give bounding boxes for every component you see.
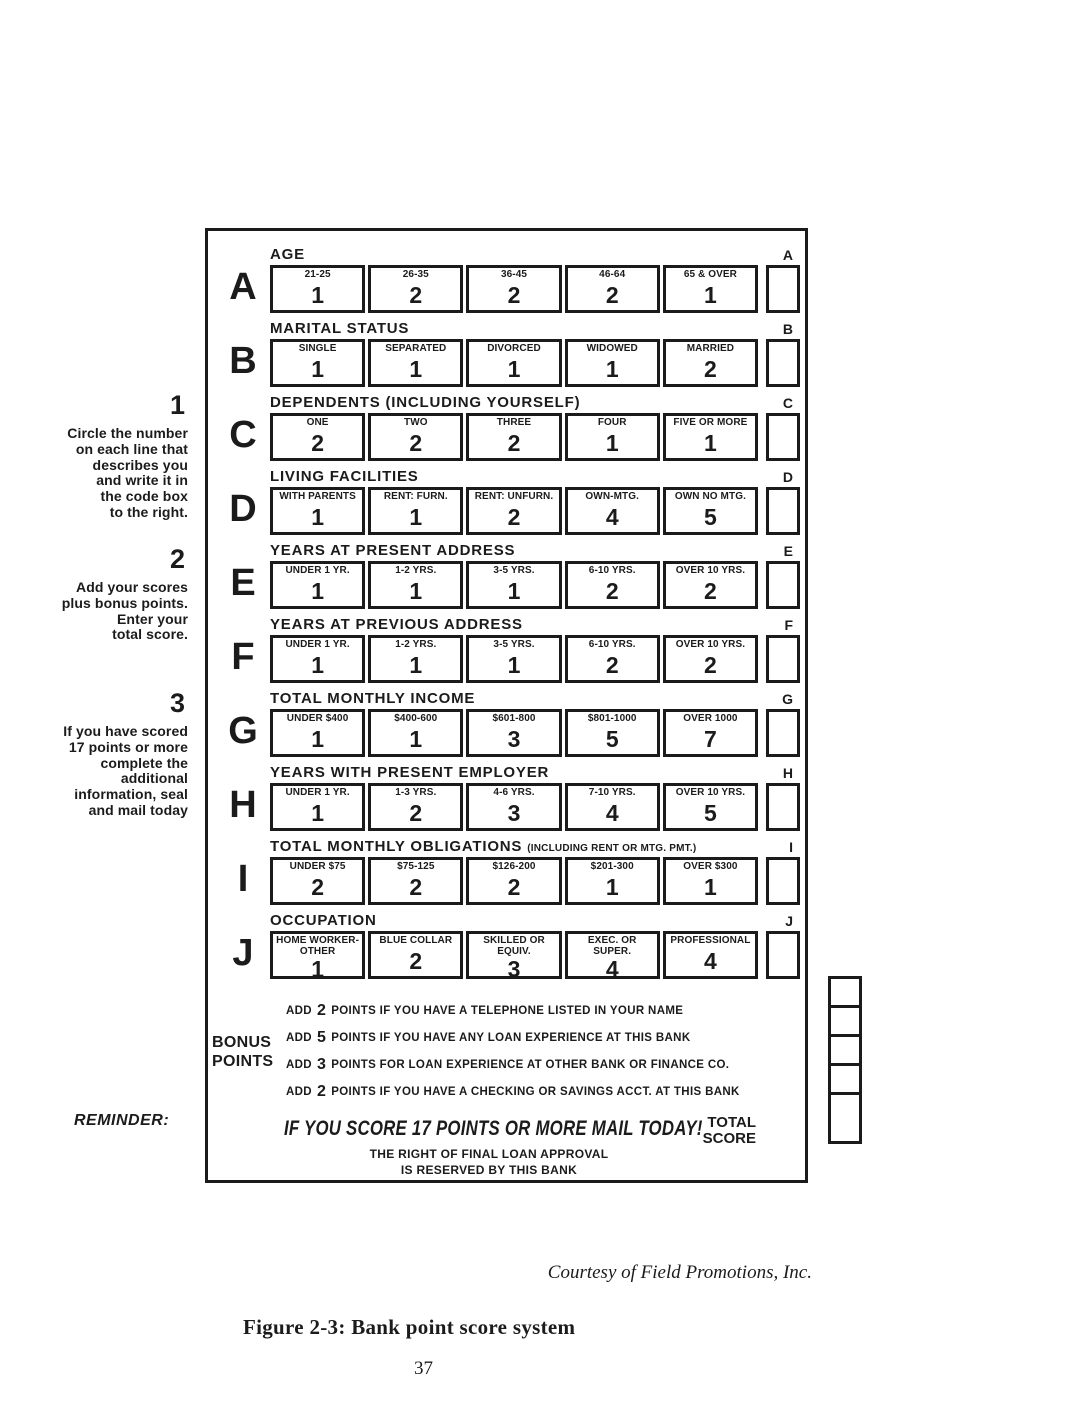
bonus-box	[831, 979, 859, 1008]
courtesy-credit: Courtesy of Field Promotions, Inc.	[548, 1262, 812, 1284]
option-cell: $201-3001	[565, 857, 660, 905]
section-title: AGE	[270, 246, 305, 263]
code-entry-box	[766, 265, 800, 313]
row-letter: J	[220, 928, 266, 978]
section-title: TOTAL MONTHLY OBLIGATIONS	[270, 838, 522, 855]
code-entry-box	[766, 857, 800, 905]
total-score-box	[831, 1095, 859, 1141]
step-number: 2	[56, 546, 188, 573]
option-cell: 65 & OVER1	[663, 265, 758, 313]
score-section-living-facilities: D LIVING FACILITIES D WITH PARENTS1 RENT…	[208, 467, 805, 541]
option-cell: WITH PARENTS1	[270, 487, 365, 535]
bonus-box	[831, 1008, 859, 1037]
option-cell: OWN-MTG.4	[565, 487, 660, 535]
reminder-section: IF YOU SCORE 17 POINTS OR MORE MAIL TODA…	[208, 1109, 805, 1179]
instruction-step-3: 3 If you have scored 17 points or more c…	[56, 690, 188, 819]
option-cell: SKILLED OR EQUIV.3	[466, 931, 561, 979]
scanned-book-page: 1 Circle the number on each line that de…	[0, 0, 1088, 1406]
page-number: 37	[414, 1358, 433, 1380]
option-cell: 46-642	[565, 265, 660, 313]
option-cell: WIDOWED1	[565, 339, 660, 387]
option-cell: UNDER 1 YR.1	[270, 783, 365, 831]
row-letter: A	[220, 262, 266, 312]
option-cell: OVER 10 YRS.2	[663, 635, 758, 683]
option-cell: UNDER 1 YR.1	[270, 561, 365, 609]
code-letter: A	[783, 247, 793, 263]
code-entry-box	[766, 783, 800, 831]
section-title: LIVING FACILITIES	[270, 468, 419, 485]
step-number: 1	[56, 392, 188, 419]
row-letter: D	[220, 484, 266, 534]
row-letter: G	[220, 706, 266, 756]
total-score-label: TOTAL SCORE	[694, 1115, 756, 1147]
code-letter: F	[784, 617, 793, 633]
code-letter: H	[783, 765, 793, 781]
code-entry-box	[766, 487, 800, 535]
row-letter: H	[220, 780, 266, 830]
option-cell: $126-2002	[466, 857, 561, 905]
score-section-years-previous-address: F YEARS AT PREVIOUS ADDRESS F UNDER 1 YR…	[208, 615, 805, 689]
option-cell: 7-10 YRS.4	[565, 783, 660, 831]
option-cell: DIVORCED1	[466, 339, 561, 387]
option-cell: OVER 10007	[663, 709, 758, 757]
option-cell: MARRIED2	[663, 339, 758, 387]
option-cell: FOUR1	[565, 413, 660, 461]
score-section-occupation: J OCCUPATION J HOME WORKER- OTHER1 BLUE …	[208, 911, 805, 985]
bonus-rule: ADD 2 POINTS IF YOU HAVE A CHECKING OR S…	[286, 1078, 740, 1105]
code-entry-box	[766, 709, 800, 757]
section-title: YEARS WITH PRESENT EMPLOYER	[270, 764, 549, 781]
instruction-step-2: 2 Add your scores plus bonus points. Ent…	[56, 546, 188, 643]
option-cell: 36-452	[466, 265, 561, 313]
option-cell: 26-352	[368, 265, 463, 313]
score-section-dependents: C DEPENDENTS (INCLUDING YOURSELF) C ONE2…	[208, 393, 805, 467]
row-letter: F	[220, 632, 266, 682]
score-section-years-present-address: E YEARS AT PRESENT ADDRESS E UNDER 1 YR.…	[208, 541, 805, 615]
option-cell: 3-5 YRS.1	[466, 561, 561, 609]
code-entry-box	[766, 339, 800, 387]
reminder-label: REMINDER:	[74, 1112, 169, 1130]
option-cell: $75-1252	[368, 857, 463, 905]
figure-caption: Figure 2-3: Bank point score system	[243, 1315, 575, 1340]
option-cell: UNDER $752	[270, 857, 365, 905]
section-title: DEPENDENTS (INCLUDING YOURSELF)	[270, 394, 580, 411]
section-title: YEARS AT PRESENT ADDRESS	[270, 542, 515, 559]
code-letter: C	[783, 395, 793, 411]
option-cell: TWO2	[368, 413, 463, 461]
score-section-monthly-income: G TOTAL MONTHLY INCOME G UNDER $4001 $40…	[208, 689, 805, 763]
option-cell: RENT: FURN.1	[368, 487, 463, 535]
option-cell: 1-2 YRS.1	[368, 635, 463, 683]
option-cell: UNDER 1 YR.1	[270, 635, 365, 683]
code-letter: D	[783, 469, 793, 485]
approval-fine-print: THE RIGHT OF FINAL LOAN APPROVAL IS RESE…	[284, 1147, 694, 1178]
option-cell: OVER 10 YRS.5	[663, 783, 758, 831]
instruction-step-1: 1 Circle the number on each line that de…	[56, 392, 188, 521]
bonus-points-section: BONUS POINTS ADD 2 POINTS IF YOU HAVE A …	[208, 985, 805, 1109]
option-cell: OVER 10 YRS.2	[663, 561, 758, 609]
option-cell: $400-6001	[368, 709, 463, 757]
bonus-box	[831, 1037, 859, 1066]
option-cell: PROFESSIONAL4	[663, 931, 758, 979]
option-cell: $601-8003	[466, 709, 561, 757]
code-entry-box	[766, 413, 800, 461]
score-section-marital-status: B MARITAL STATUS B SINGLE1 SEPARATED1 DI…	[208, 319, 805, 393]
section-title: OCCUPATION	[270, 912, 377, 929]
row-letter: E	[220, 558, 266, 608]
step-text: If you have scored 17 points or more com…	[56, 724, 188, 819]
code-letter: E	[784, 543, 793, 559]
bonus-rule: ADD 2 POINTS IF YOU HAVE A TELEPHONE LIS…	[286, 997, 740, 1024]
section-title: YEARS AT PREVIOUS ADDRESS	[270, 616, 523, 633]
option-cell: 1-3 YRS.2	[368, 783, 463, 831]
option-cell: 3-5 YRS.1	[466, 635, 561, 683]
option-cell: SINGLE1	[270, 339, 365, 387]
bonus-box	[831, 1066, 859, 1095]
option-cell: $801-10005	[565, 709, 660, 757]
row-letter: B	[220, 336, 266, 386]
bank-point-score-form: A AGE A 21-251 26-352 36-452 46-642 65 &…	[205, 228, 808, 1183]
option-cell: 1-2 YRS.1	[368, 561, 463, 609]
step-text: Add your scores plus bonus points. Enter…	[56, 580, 188, 643]
option-cell: 6-10 YRS.2	[565, 635, 660, 683]
option-cell: ONE2	[270, 413, 365, 461]
section-title: MARITAL STATUS	[270, 320, 409, 337]
row-letter: I	[220, 854, 266, 904]
step-number: 3	[56, 690, 188, 717]
section-note: (INCLUDING RENT OR MTG. PMT.)	[527, 843, 696, 854]
code-entry-box	[766, 635, 800, 683]
code-entry-box	[766, 561, 800, 609]
score-section-monthly-obligations: I TOTAL MONTHLY OBLIGATIONS (INCLUDING R…	[208, 837, 805, 911]
row-letter: C	[220, 410, 266, 460]
option-cell: UNDER $4001	[270, 709, 365, 757]
score-section-years-with-employer: H YEARS WITH PRESENT EMPLOYER H UNDER 1 …	[208, 763, 805, 837]
option-cell: SEPARATED1	[368, 339, 463, 387]
code-letter: B	[783, 321, 793, 337]
option-cell: 4-6 YRS.3	[466, 783, 561, 831]
code-letter: J	[785, 913, 793, 929]
code-letter: G	[782, 691, 793, 707]
bonus-rule: ADD 3 POINTS FOR LOAN EXPERIENCE AT OTHE…	[286, 1051, 740, 1078]
option-cell: RENT: UNFURN.2	[466, 487, 561, 535]
option-cell: FIVE OR MORE1	[663, 413, 758, 461]
score-section-age: A AGE A 21-251 26-352 36-452 46-642 65 &…	[208, 245, 805, 319]
bonus-score-boxes	[828, 976, 862, 1144]
step-text: Circle the number on each line that desc…	[56, 426, 188, 521]
bonus-rule: ADD 5 POINTS IF YOU HAVE ANY LOAN EXPERI…	[286, 1024, 740, 1051]
option-cell: EXEC. OR SUPER.4	[565, 931, 660, 979]
option-cell: 21-251	[270, 265, 365, 313]
bonus-points-label: BONUS POINTS	[212, 1033, 273, 1071]
option-cell: OWN NO MTG.5	[663, 487, 758, 535]
code-entry-box	[766, 931, 800, 979]
option-cell: THREE2	[466, 413, 561, 461]
option-cell: OVER $3001	[663, 857, 758, 905]
code-letter: I	[789, 839, 793, 855]
option-cell: BLUE COLLAR2	[368, 931, 463, 979]
section-title: TOTAL MONTHLY INCOME	[270, 690, 475, 707]
option-cell: HOME WORKER- OTHER1	[270, 931, 365, 979]
option-cell: 6-10 YRS.2	[565, 561, 660, 609]
reminder-headline: IF YOU SCORE 17 POINTS OR MORE MAIL TODA…	[284, 1117, 703, 1141]
